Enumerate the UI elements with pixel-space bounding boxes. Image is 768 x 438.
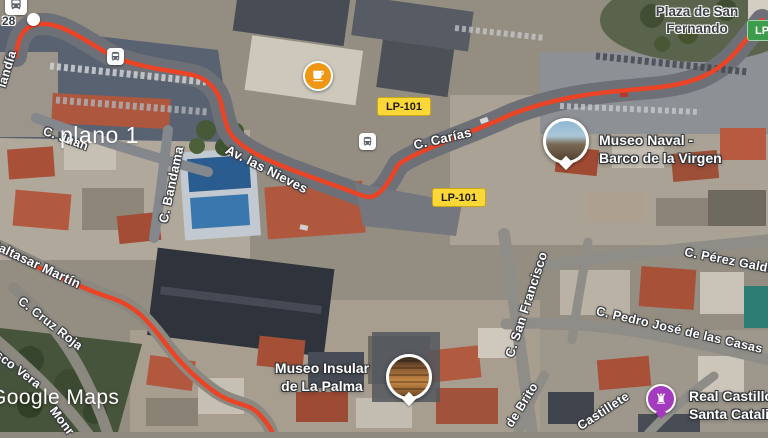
poi-label-line: Santa Catalina <box>689 405 768 423</box>
google-maps-satellite-view: { "annotation": { "text": "plano 1" }, "… <box>0 0 768 432</box>
poi-label-line: Real Castillo de <box>689 387 768 405</box>
museo-naval-label[interactable]: Museo Naval - Barco de la Virgen <box>599 131 722 167</box>
cafe-icon[interactable] <box>303 61 333 91</box>
bus-glyph <box>9 0 23 11</box>
museo-insular-marker[interactable] <box>386 354 432 404</box>
poi-label-line: Museo Insular <box>252 359 392 377</box>
google-maps-watermark: Google Maps <box>0 386 119 410</box>
area-label-line: Plaza de San <box>638 3 756 20</box>
poi-label-line: Barco de la Virgen <box>599 149 722 167</box>
castle-rook-glyph: ♜ <box>655 392 668 406</box>
museo-insular-label[interactable]: Museo Insular de La Palma <box>252 359 392 395</box>
poi-label-line: de La Palma <box>252 377 392 395</box>
bus-icon-junction[interactable] <box>359 133 376 150</box>
bus-glyph <box>362 136 373 147</box>
bus-station-icon[interactable] <box>5 0 27 15</box>
road-shield-lp101-upper[interactable]: LP-101 <box>377 97 431 116</box>
transit-time-fragment: 28 <box>2 14 15 28</box>
bus-glyph <box>110 51 121 62</box>
shield-text: LP-101 <box>441 192 477 204</box>
bus-icon-nieves[interactable] <box>107 48 124 65</box>
real-castillo-marker[interactable]: ♜ <box>646 384 676 417</box>
plaza-san-fernando-label[interactable]: Plaza de San Fernando <box>638 3 756 37</box>
museo-naval-marker[interactable] <box>543 118 589 168</box>
shield-text: LP <box>755 25 768 37</box>
cafe-glyph <box>311 69 325 83</box>
road-shield-lp101-lower[interactable]: LP-101 <box>432 188 486 207</box>
shield-text: LP-101 <box>386 101 422 113</box>
real-castillo-label[interactable]: Real Castillo de Santa Catalina <box>689 387 768 423</box>
map-annotation-plano: plano 1 <box>60 122 139 149</box>
area-label-line: Fernando <box>638 20 756 37</box>
bus-stop-dot[interactable] <box>27 13 40 26</box>
poi-label-line: Museo Naval - <box>599 131 722 149</box>
